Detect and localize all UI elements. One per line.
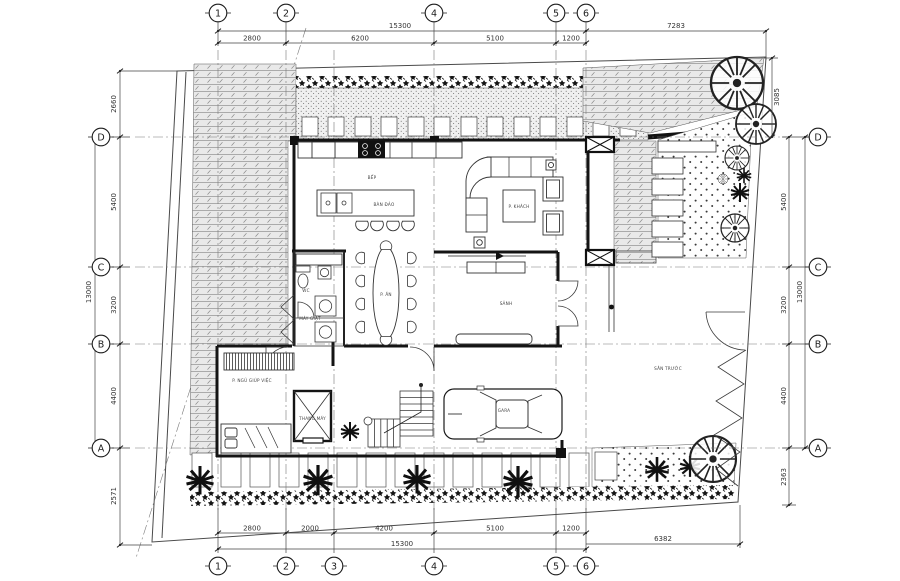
dim-left-seg-2: 3200 xyxy=(110,296,118,314)
grid-bubble-top-1: 1 xyxy=(205,4,231,22)
svg-text:2: 2 xyxy=(283,8,289,19)
grid-bubble-left-D: D xyxy=(88,128,114,146)
x-column-bottom xyxy=(586,250,614,265)
dim-left-below: 2571 xyxy=(110,487,118,505)
porch-railing xyxy=(609,256,614,332)
dim-bottom-side: 6382 xyxy=(654,535,672,543)
dim-right-total: 13000 xyxy=(796,281,804,303)
room-label-maid: P. NGỦ GIÚP VIỆC xyxy=(232,378,272,383)
dim-right-below: 2363 xyxy=(780,468,788,486)
svg-text:5: 5 xyxy=(553,561,559,572)
svg-text:A: A xyxy=(815,443,822,454)
bench xyxy=(456,334,532,344)
column xyxy=(556,448,566,458)
dim-right-seg-1: 5400 xyxy=(780,193,788,211)
basin-icon xyxy=(318,266,331,279)
dim-top-seg-2: 6200 xyxy=(351,35,369,43)
tree-icon xyxy=(725,146,749,170)
room-label-hall: SẢNH xyxy=(500,301,513,306)
dim-bottom-seg-4: 5100 xyxy=(486,525,504,533)
tree-icon xyxy=(718,174,728,184)
dim-left-above: 2660 xyxy=(110,95,118,113)
floor-plan-drawing: BẾP BÀN ĐẢO P. ĂN P. KHÁCH SẢNH WC MÁY G… xyxy=(0,0,900,581)
stairs-group xyxy=(341,383,433,447)
front-garden-paver xyxy=(595,452,617,480)
svg-text:A: A xyxy=(98,443,105,454)
dim-left-seg-1: 5400 xyxy=(110,193,118,211)
svg-text:4: 4 xyxy=(431,561,437,572)
dim-bottom-total: 15300 xyxy=(391,540,413,548)
bottom-hedge xyxy=(190,485,735,506)
dim-bottom-seg-2: 2000 xyxy=(301,525,319,533)
svg-text:1: 1 xyxy=(215,561,221,572)
bar-stool xyxy=(402,221,415,231)
grid-bubble-bottom-5: 5 xyxy=(543,557,569,575)
dim-left-total: 13000 xyxy=(85,281,93,303)
grid-bubble-right-C: C xyxy=(805,258,831,276)
grid-bubble-right-D: D xyxy=(805,128,831,146)
grid-bubble-top-5: 5 xyxy=(543,4,569,22)
grid-bubble-left-A: A xyxy=(88,439,114,457)
tree-icon xyxy=(711,57,763,109)
dim-top-side: 7283 xyxy=(667,22,685,30)
plot-boundary-inner xyxy=(162,72,186,538)
dim-bottom-seg-1: 2800 xyxy=(243,525,261,533)
grid-bubble-top-6: 6 xyxy=(573,4,599,22)
grid-bubble-bottom-1: 1 xyxy=(205,557,231,575)
room-label-island: BÀN ĐẢO xyxy=(373,202,395,207)
svg-text:D: D xyxy=(97,132,104,143)
armchair xyxy=(543,211,563,235)
stove xyxy=(358,141,385,158)
bar-stool xyxy=(356,221,369,231)
dim-right-seg-2: 3200 xyxy=(780,296,788,314)
grid-bubble-top-4: 4 xyxy=(421,4,447,22)
dim-top-seg-3: 5100 xyxy=(486,35,504,43)
grid-bubble-bottom-2: 2 xyxy=(273,557,299,575)
room-label-wc: WC xyxy=(302,288,309,293)
living-group xyxy=(466,157,563,248)
svg-text:6: 6 xyxy=(583,561,589,572)
bed xyxy=(221,424,291,453)
svg-text:6: 6 xyxy=(583,8,589,19)
dim-bottom-seg-5: 1200 xyxy=(562,525,580,533)
double-door xyxy=(558,281,578,326)
room-label-elevator: THANG MÁY xyxy=(298,416,326,421)
dim-top-seg-1: 2800 xyxy=(243,35,261,43)
grid-bubble-left-C: C xyxy=(88,258,114,276)
dim-left-seg-3: 4400 xyxy=(110,387,118,405)
site-layer xyxy=(136,28,776,558)
wardrobe xyxy=(224,353,294,370)
svg-text:5: 5 xyxy=(553,8,559,19)
svg-text:C: C xyxy=(815,262,822,273)
grid-bubble-bottom-3: 3 xyxy=(321,557,347,575)
room-label-front-yard: SÂN TRƯỚC xyxy=(654,366,682,371)
dim-right-above: 3085 xyxy=(773,88,781,106)
wc-group xyxy=(294,252,344,346)
grid-bubble-bottom-6: 6 xyxy=(573,557,599,575)
side-table xyxy=(546,160,556,170)
kitchen-group xyxy=(298,141,462,231)
x-column-top xyxy=(586,137,614,152)
hatched-wall-segment xyxy=(616,251,656,263)
svg-text:B: B xyxy=(98,339,105,350)
dim-right-seg-3: 4400 xyxy=(780,387,788,405)
armchair xyxy=(543,177,563,201)
wc-counter xyxy=(296,254,342,265)
room-label-laundry: MÁY GIẶT xyxy=(299,316,321,321)
plant-icon xyxy=(341,422,359,441)
floor-plan-sheet: BẾP BÀN ĐẢO P. ĂN P. KHÁCH SẢNH WC MÁY G… xyxy=(0,0,900,581)
washer-icon xyxy=(315,296,336,316)
grid-bubble-right-B: B xyxy=(805,335,831,353)
dim-bottom-seg-3: 4200 xyxy=(375,525,393,533)
dim-top-total: 15300 xyxy=(389,22,411,30)
maid-room-group xyxy=(221,353,294,453)
toilet-icon xyxy=(296,266,310,288)
grid-bubble-top-2: 2 xyxy=(273,4,299,22)
side-table xyxy=(474,237,485,248)
bar-stool xyxy=(387,221,400,231)
room-label-living: P. KHÁCH xyxy=(509,204,530,209)
bottom-pavers xyxy=(192,453,589,487)
svg-text:D: D xyxy=(814,132,821,143)
grid-bubble-left-B: B xyxy=(88,335,114,353)
fridge xyxy=(312,142,335,158)
grid-bubble-right-A: A xyxy=(805,439,831,457)
inner-door xyxy=(410,347,434,371)
svg-text:4: 4 xyxy=(431,8,437,19)
room-label-garage: GARA xyxy=(498,408,511,413)
room-label-kitchen: BẾP xyxy=(368,174,377,180)
bar-stool xyxy=(371,221,384,231)
svg-text:2: 2 xyxy=(283,561,289,572)
dim-top-seg-4: 1200 xyxy=(562,35,580,43)
svg-text:3: 3 xyxy=(331,561,337,572)
svg-text:B: B xyxy=(815,339,822,350)
svg-text:1: 1 xyxy=(215,8,221,19)
tree-icon xyxy=(721,214,749,242)
room-label-dining: P. ĂN xyxy=(380,292,392,297)
dryer-icon xyxy=(315,322,336,342)
svg-text:C: C xyxy=(98,262,105,273)
grid-bubble-bottom-4: 4 xyxy=(421,557,447,575)
side-paving-hatch xyxy=(190,64,296,455)
car xyxy=(444,386,562,442)
tree-icon xyxy=(690,436,736,482)
walkway-hatch xyxy=(614,141,656,251)
